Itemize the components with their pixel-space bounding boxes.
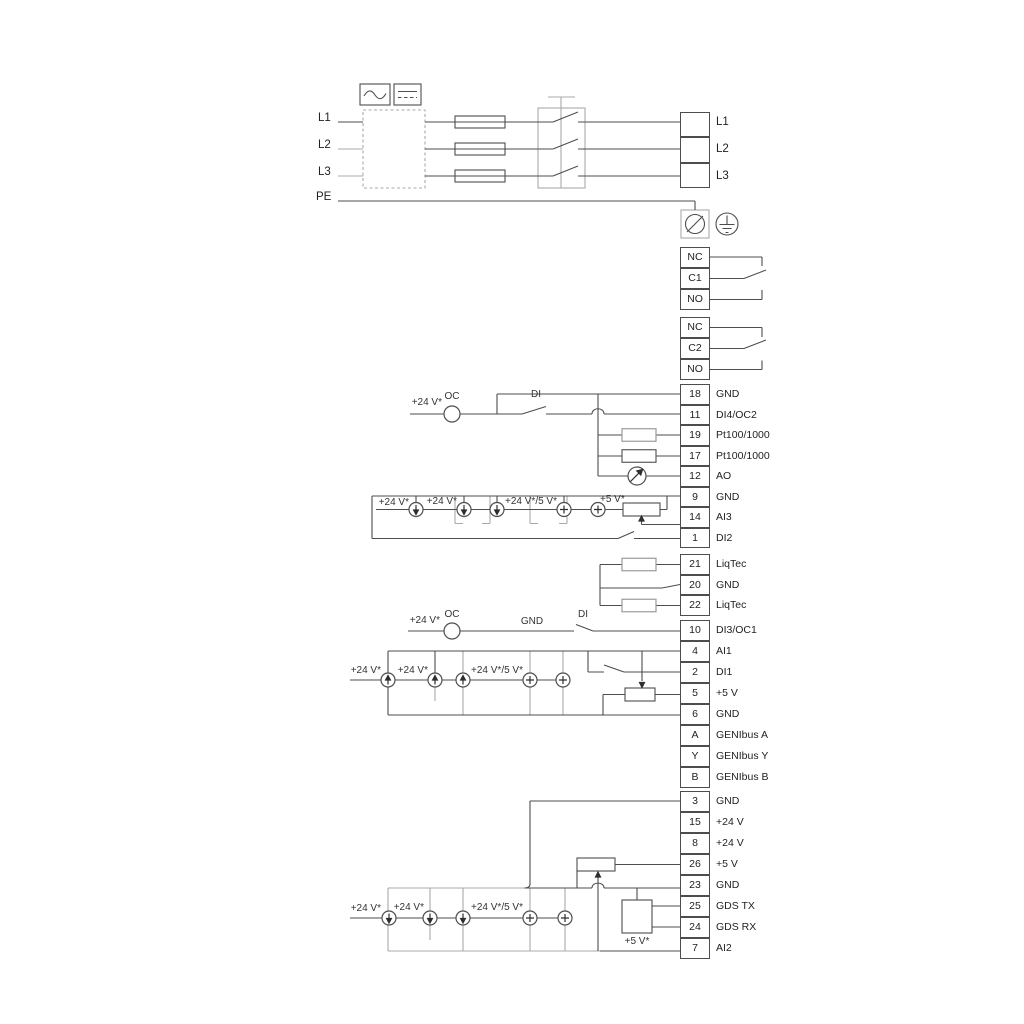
label-24v-5v: +24 V*/5 V* — [467, 666, 523, 676]
relay2-no: NO — [680, 359, 710, 380]
label-l1-out: L1 — [716, 116, 729, 128]
terminal-label: DI3/OC1 — [716, 620, 757, 641]
terminal-label: DI1 — [716, 662, 769, 683]
terminal-cell: 14 — [680, 507, 710, 528]
terminal-label: LiqTec — [716, 554, 746, 575]
terminal-label: GND — [716, 875, 756, 896]
label-5v: +5 V* — [600, 495, 625, 505]
terminal-cell: 26 — [680, 854, 710, 875]
liqtec-resistor-22 — [622, 599, 656, 612]
circle-glyphs — [386, 470, 645, 924]
wire-pe — [338, 201, 695, 210]
label-di: DI — [525, 390, 547, 400]
terminal-strip-e-labels: GND +24 V +24 V +5 V GND GDS TX GDS RX A… — [716, 791, 756, 959]
rectifier-dashed-box — [363, 110, 425, 188]
terminal-cell: 9 — [680, 487, 710, 508]
label-24v: +24 V* — [345, 666, 381, 676]
terminal-strip-e: 3 15 8 26 23 25 24 7 — [680, 791, 710, 959]
terminal-cell: 5 — [680, 683, 710, 704]
dc-symbol-box — [394, 84, 421, 105]
row1-potentiometer — [623, 503, 660, 516]
terminal-cell: 15 — [680, 812, 710, 833]
terminal-label: AI2 — [716, 938, 756, 959]
terminal-label: AI3 — [716, 507, 770, 528]
terminal-label: GND — [716, 704, 769, 725]
analog-output-meter-icon — [628, 467, 646, 485]
label-l2-out: L2 — [716, 143, 729, 155]
switch-blades — [553, 112, 578, 176]
relay2-contact — [710, 328, 766, 370]
terminal-label: GENIbus Y — [716, 746, 769, 767]
row3-potentiometer — [577, 858, 615, 871]
terminal-strip-a-labels: GND DI4/OC2 Pt100/1000 Pt100/1000 AO GND… — [716, 384, 770, 548]
label-24v-5v: +24 V*/5 V* — [467, 903, 523, 913]
terminal-cell: 21 — [680, 554, 710, 575]
terminal-cell: B — [680, 767, 710, 788]
terminal-label: DI2 — [716, 528, 770, 549]
terminal-cell: Y — [680, 746, 710, 767]
relay1-contact — [710, 257, 766, 300]
terminal-label: LiqTec — [716, 595, 746, 616]
relay1-no: NO — [680, 289, 710, 310]
label-gnd: GND — [512, 617, 552, 627]
terminal-label: +24 V — [716, 833, 756, 854]
label-24v: +24 V* — [402, 616, 440, 626]
terminal-label: GENIbus A — [716, 725, 769, 746]
label-5v: +5 V* — [618, 937, 656, 947]
terminal-cell: 18 — [680, 384, 710, 405]
row2-wires — [350, 651, 680, 715]
terminal-cell: 25 — [680, 896, 710, 917]
terminal-cell: 2 — [680, 662, 710, 683]
terminal-cell: A — [680, 725, 710, 746]
relay1-nc: NC — [680, 247, 710, 268]
terminal-strip-c-labels: DI3/OC1 — [716, 620, 757, 641]
terminal-label: +24 V — [716, 812, 756, 833]
terminal-label: GDS RX — [716, 917, 756, 938]
terminal-cell: 4 — [680, 641, 710, 662]
row2-potentiometer — [625, 688, 655, 701]
relay2-nc: NC — [680, 317, 710, 338]
label-oc: OC — [441, 610, 463, 620]
relay1-block: NC C1 NO — [680, 247, 710, 310]
terminal-label: DI4/OC2 — [716, 405, 770, 426]
relay2-c: C2 — [680, 338, 710, 359]
terminal-cell: 23 — [680, 875, 710, 896]
terminal-cell — [680, 112, 710, 137]
label-l3-in: L3 — [318, 166, 331, 178]
label-24v: +24 V* — [421, 497, 457, 507]
terminal-label: AI1 — [716, 641, 769, 662]
row3-wires — [350, 801, 680, 951]
terminal-strip-a: 18 11 19 17 12 9 14 1 — [680, 384, 710, 548]
terminal-strip-d: 4 2 5 6 A Y B — [680, 641, 710, 788]
terminal-cell: 7 — [680, 938, 710, 959]
pt100-resistor-19 — [622, 429, 656, 442]
terminal-label: Pt100/1000 — [716, 446, 770, 467]
relay1-c: C1 — [680, 268, 710, 289]
label-24v: +24 V* — [373, 498, 409, 508]
ac-sine-icon — [364, 91, 386, 99]
label-24v: +24 V* — [392, 666, 428, 676]
terminal-cell: 17 — [680, 446, 710, 467]
liqtec-resistor-21 — [622, 558, 656, 571]
terminal-cell: 6 — [680, 704, 710, 725]
terminal-cell: 22 — [680, 595, 710, 616]
terminal-label: AO — [716, 466, 770, 487]
label-24v: +24 V* — [404, 398, 442, 408]
oc-circle-2 — [444, 623, 460, 639]
terminal-cell: 10 — [680, 620, 710, 641]
switch-linkage — [548, 97, 575, 188]
terminal-label: +5 V — [716, 683, 769, 704]
oc-circle-1 — [444, 406, 460, 422]
terminal-cell: 1 — [680, 528, 710, 549]
terminal-cell: 3 — [680, 791, 710, 812]
gds-module-box — [622, 900, 652, 933]
terminal-label: GND — [716, 575, 746, 596]
label-l2-in: L2 — [318, 139, 331, 151]
relay2-block: NC C2 NO — [680, 317, 710, 380]
terminal-cell: 19 — [680, 425, 710, 446]
terminal-cell: 12 — [680, 466, 710, 487]
terminal-label: GND — [716, 487, 770, 508]
terminal-cell: 8 — [680, 833, 710, 854]
terminal-strip-b-labels: LiqTec GND LiqTec — [716, 554, 746, 616]
label-pe: PE — [316, 191, 331, 203]
terminal-strip-d-labels: AI1 DI1 +5 V GND GENIbus A GENIbus Y GEN… — [716, 641, 769, 788]
pt100-resistor-17 — [622, 450, 656, 463]
terminal-label: GENIbus B — [716, 767, 769, 788]
label-l3-out: L3 — [716, 170, 729, 182]
terminal-cell — [680, 163, 710, 188]
terminal-strip-c: 10 — [680, 620, 710, 641]
terminal-strip-b: 21 20 22 — [680, 554, 710, 616]
label-24v-5v: +24 V*/5 V* — [501, 497, 557, 507]
terminal-label: GND — [716, 791, 756, 812]
terminal-label: +5 V — [716, 854, 756, 875]
terminal-label: Pt100/1000 — [716, 425, 770, 446]
terminal-cell: 20 — [680, 575, 710, 596]
label-24v: +24 V* — [390, 903, 424, 913]
terminal-label: GDS TX — [716, 896, 756, 917]
terminal-cell — [680, 137, 710, 162]
label-l1-in: L1 — [318, 112, 331, 124]
label-oc: OC — [441, 392, 463, 402]
wiring-diagram: L1 L2 L3 PE L1 L2 L3 NC C1 NO NC C2 NO 1… — [0, 0, 1024, 1024]
terminal-cell: 11 — [680, 405, 710, 426]
wiring-svg — [0, 0, 1024, 1024]
label-di: DI — [572, 610, 594, 620]
terminal-label: GND — [716, 384, 770, 405]
label-24v: +24 V* — [345, 904, 381, 914]
power-terminal-block — [680, 112, 710, 188]
terminal-cell: 24 — [680, 917, 710, 938]
